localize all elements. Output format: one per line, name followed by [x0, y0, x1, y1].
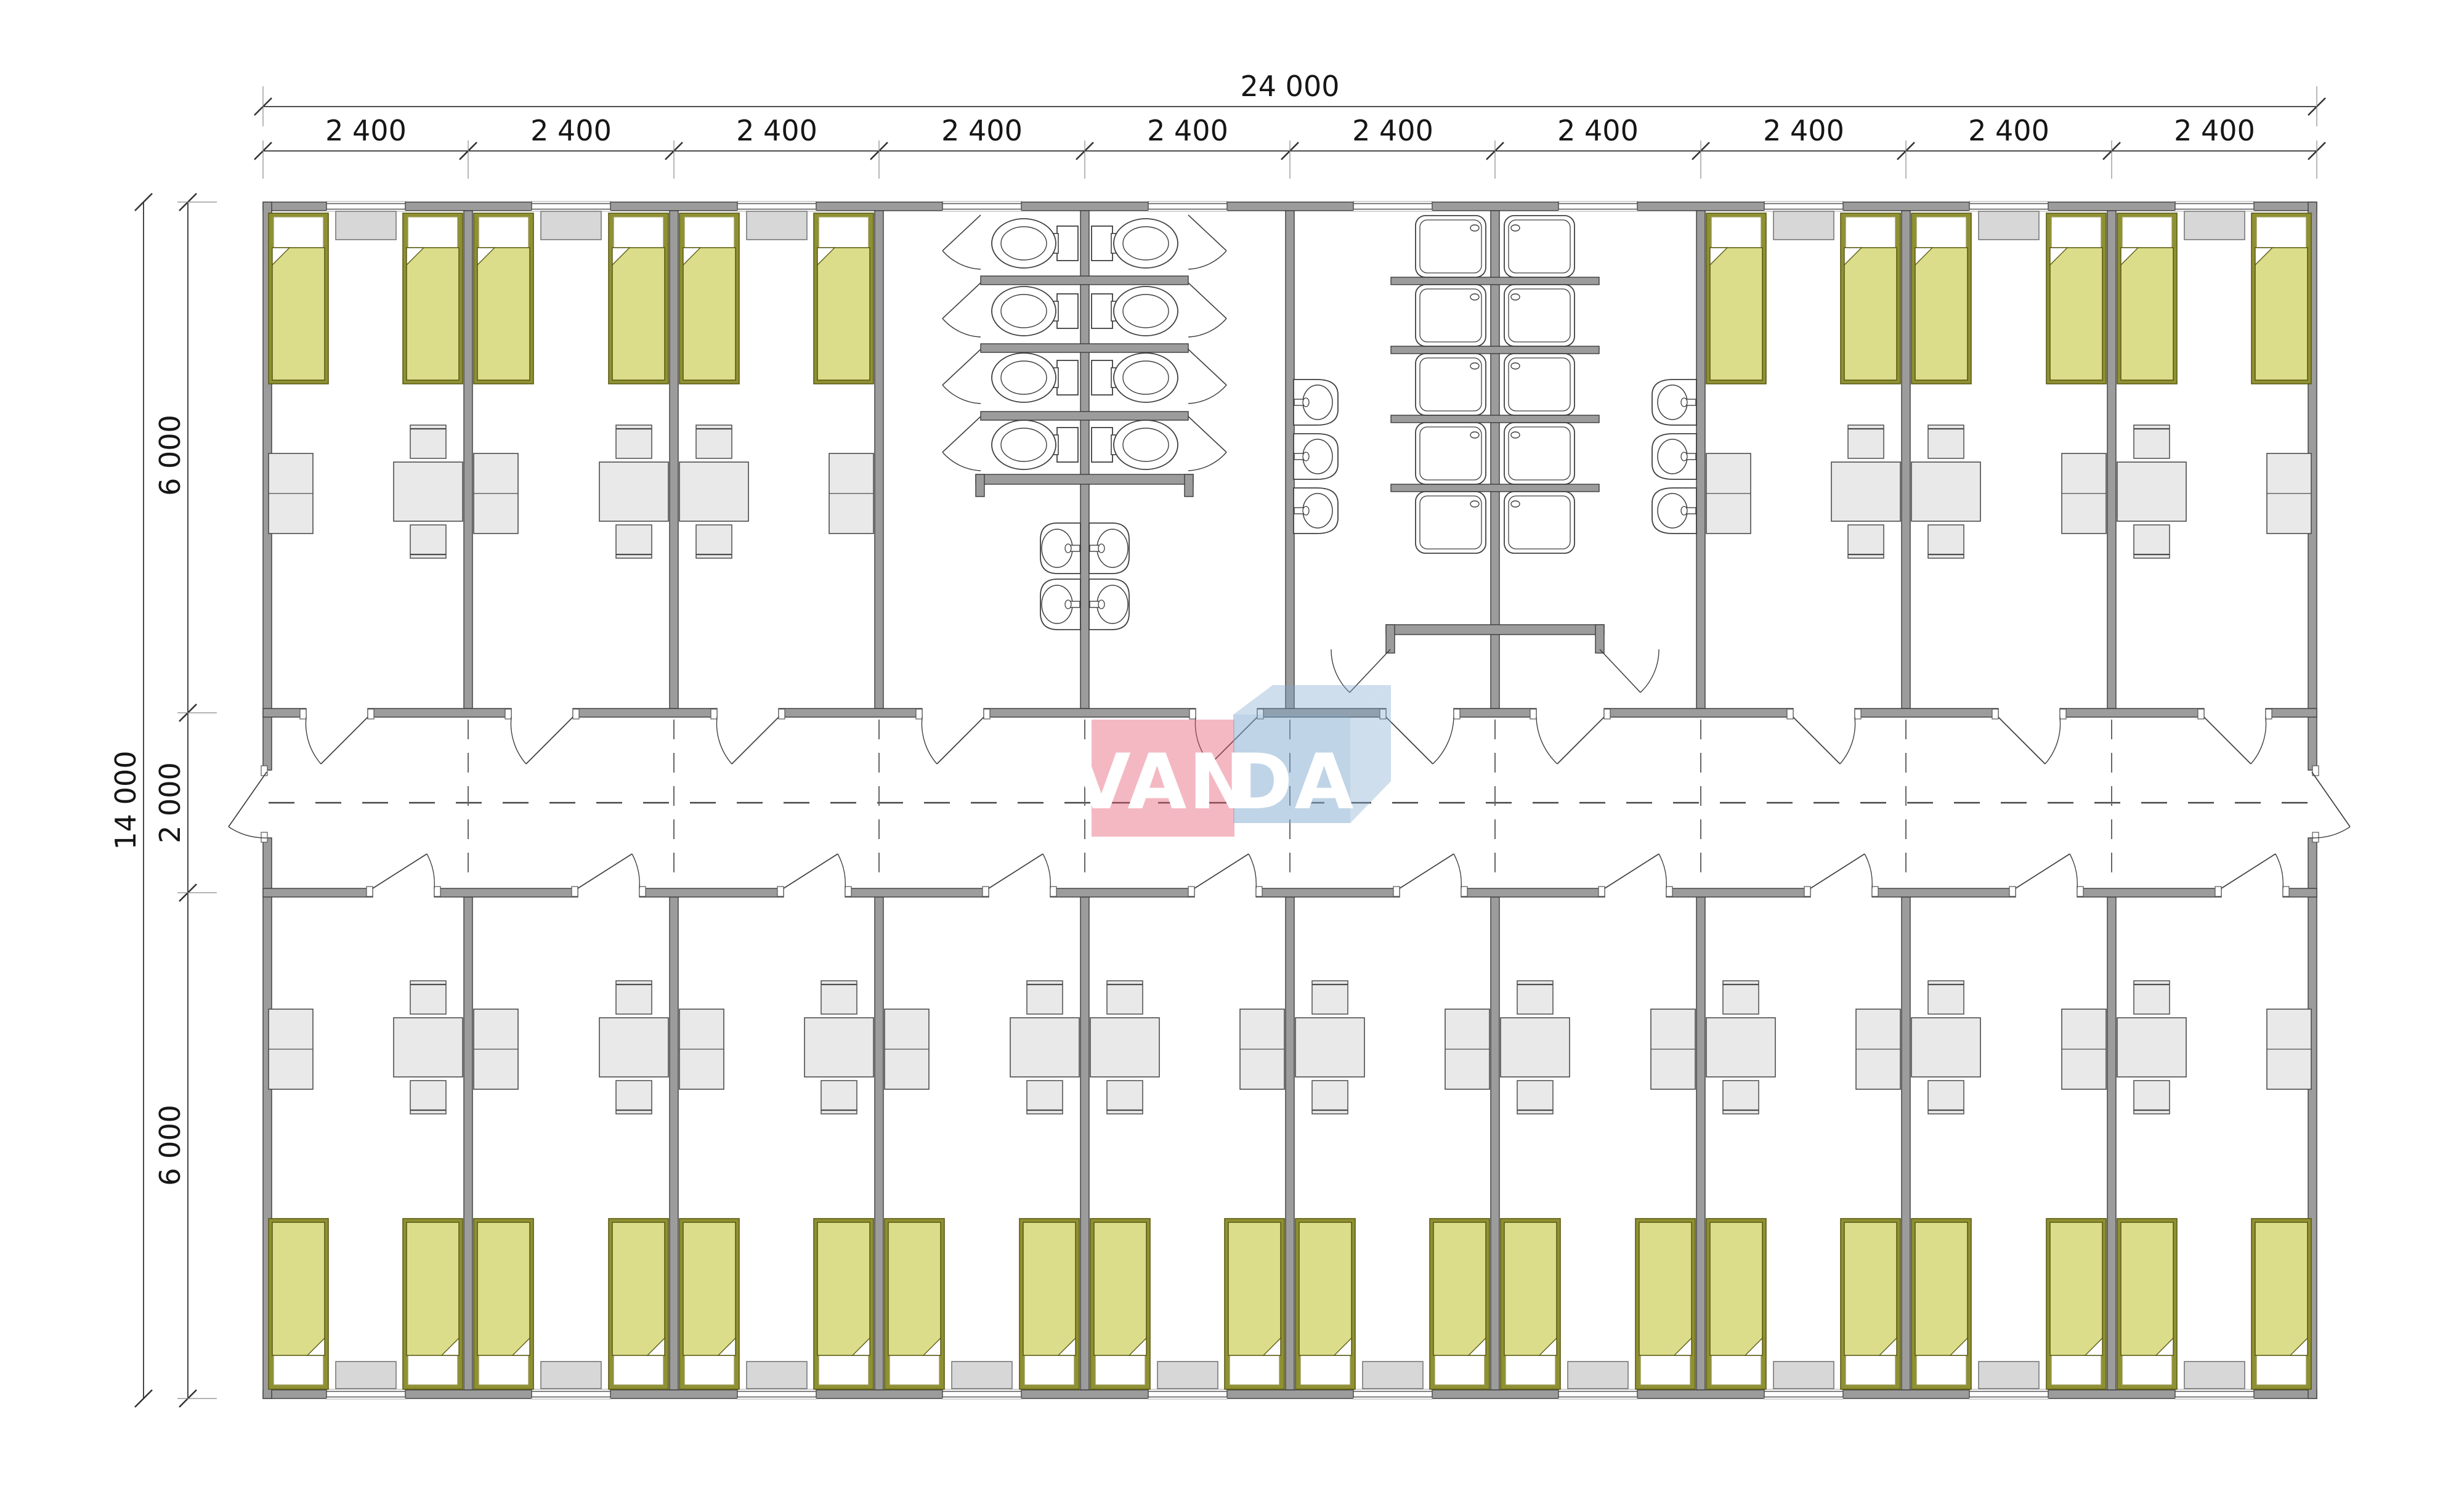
- shower-tray: [1416, 354, 1486, 415]
- radiator: [1979, 1362, 2039, 1389]
- bed: [1295, 1219, 1355, 1389]
- wardrobe: [679, 1009, 724, 1089]
- shower-tray: [1504, 285, 1574, 346]
- stall-door: [1188, 349, 1226, 404]
- wardrobe: [1856, 1009, 1900, 1089]
- dim-total-height: 14 000: [109, 751, 142, 850]
- radiator: [541, 1362, 601, 1389]
- wardrobe: [269, 1009, 313, 1089]
- bed: [814, 1219, 873, 1389]
- toilet: [992, 286, 1078, 336]
- bed: [2251, 213, 2311, 384]
- shower-tray: [1504, 354, 1574, 415]
- stall-door: [1188, 416, 1226, 471]
- bed: [1841, 1219, 1900, 1389]
- table-with-chairs: [1295, 981, 1364, 1114]
- wardrobe: [2267, 1009, 2311, 1089]
- wash-basin: [1294, 488, 1338, 534]
- bed: [2046, 1219, 2106, 1389]
- shower-tray: [1416, 216, 1486, 277]
- bed: [814, 213, 873, 384]
- bed: [1019, 1219, 1079, 1389]
- table-with-chairs: [1706, 981, 1775, 1114]
- logo-text-da: DA: [1230, 738, 1356, 827]
- wash-basin: [1294, 434, 1338, 479]
- bed: [1635, 1219, 1695, 1389]
- wardrobe: [2267, 453, 2311, 534]
- table-with-chairs: [2117, 981, 2186, 1114]
- bed: [2117, 1219, 2177, 1389]
- wardrobe: [1445, 1009, 1489, 1089]
- table-with-chairs: [394, 981, 463, 1114]
- radiator: [1773, 211, 1834, 240]
- wardrobe: [474, 453, 518, 534]
- shower-tray: [1416, 492, 1486, 553]
- shower-door: [1600, 649, 1659, 692]
- dim-total-width: 24 000: [1241, 70, 1340, 103]
- radiator: [2184, 211, 2245, 240]
- radiator: [952, 1362, 1012, 1389]
- shower-tray: [1504, 423, 1574, 484]
- bed: [2046, 213, 2106, 384]
- dim-module-width: 2 400: [1968, 114, 2049, 147]
- wash-basin: [1040, 579, 1080, 630]
- table-with-chairs: [804, 981, 873, 1114]
- wash-basin: [1089, 579, 1129, 630]
- table-with-chairs: [1090, 981, 1159, 1114]
- bed: [474, 1219, 533, 1389]
- bed: [269, 213, 328, 384]
- toilet: [1092, 286, 1178, 336]
- dim-height-segment: 6 000: [153, 415, 187, 496]
- bed: [474, 213, 533, 384]
- toilet: [992, 420, 1078, 469]
- stall-door: [1188, 283, 1226, 337]
- vanda-logo: VANDA: [1072, 685, 1391, 837]
- radiator: [336, 211, 396, 240]
- dim-module-width: 2 400: [2174, 114, 2255, 147]
- radiator: [1363, 1362, 1423, 1389]
- bed: [1706, 1219, 1766, 1389]
- dim-module-width: 2 400: [1352, 114, 1433, 147]
- stall-door: [1188, 215, 1226, 269]
- floor-plan-drawing: VANDA24 0002 4002 4002 4002 4002 4002 40…: [0, 0, 2464, 1502]
- shower-tray: [1416, 285, 1486, 346]
- stall-door: [942, 215, 981, 269]
- toilet: [992, 353, 1078, 402]
- wash-basin: [1652, 434, 1696, 479]
- radiator: [747, 211, 807, 240]
- wardrobe: [474, 1009, 518, 1089]
- wardrobe: [885, 1009, 929, 1089]
- shower-tray: [1504, 492, 1574, 553]
- dim-module-width: 2 400: [1147, 114, 1228, 147]
- table-with-chairs: [1911, 425, 1980, 558]
- wardrobe: [829, 453, 873, 534]
- wash-basin: [1652, 488, 1696, 534]
- bed: [1911, 213, 1971, 384]
- stall-door: [942, 349, 981, 404]
- dim-height-segment: 6 000: [153, 1105, 187, 1186]
- toilet: [1092, 353, 1178, 402]
- table-with-chairs: [1831, 425, 1900, 558]
- wardrobe: [269, 453, 313, 534]
- toilet: [992, 219, 1078, 268]
- wardrobe: [2062, 1009, 2106, 1089]
- wash-basin: [1040, 523, 1080, 574]
- dim-module-width: 2 400: [1763, 114, 1844, 147]
- bed: [1706, 213, 1766, 384]
- table-with-chairs: [599, 981, 668, 1114]
- radiator: [747, 1362, 807, 1389]
- radiator: [1773, 1362, 1834, 1389]
- dim-module-width: 2 400: [325, 114, 407, 147]
- wash-basin: [1089, 523, 1129, 574]
- bed: [403, 1219, 463, 1389]
- toilet: [1092, 219, 1178, 268]
- floor-plan-canvas: VANDA24 0002 4002 4002 4002 4002 4002 40…: [0, 0, 2464, 1502]
- wardrobe: [1240, 1009, 1284, 1089]
- shower-tray: [1416, 423, 1486, 484]
- bed: [609, 213, 668, 384]
- wash-basin: [1294, 380, 1338, 425]
- bed: [2251, 1219, 2311, 1389]
- bed: [1430, 1219, 1489, 1389]
- toilet: [1092, 420, 1178, 469]
- radiator: [1568, 1362, 1628, 1389]
- table-with-chairs: [1911, 981, 1980, 1114]
- bed: [403, 213, 463, 384]
- logo-text-van: VAN: [1072, 738, 1254, 827]
- table-with-chairs: [394, 425, 463, 558]
- wardrobe: [1651, 1009, 1695, 1089]
- table-with-chairs: [1010, 981, 1079, 1114]
- radiator: [2184, 1362, 2245, 1389]
- dim-module-width: 2 400: [530, 114, 612, 147]
- bed: [1911, 1219, 1971, 1389]
- wash-basin: [1652, 380, 1696, 425]
- dim-module-width: 2 400: [1557, 114, 1639, 147]
- radiator: [336, 1362, 396, 1389]
- bed: [609, 1219, 668, 1389]
- table-with-chairs: [2117, 425, 2186, 558]
- bed: [679, 213, 739, 384]
- stall-door: [942, 416, 981, 471]
- wardrobe: [2062, 453, 2106, 534]
- bed: [885, 1219, 944, 1389]
- table-with-chairs: [1501, 981, 1570, 1114]
- dim-module-width: 2 400: [941, 114, 1023, 147]
- radiator: [541, 211, 601, 240]
- bed: [679, 1219, 739, 1389]
- bed: [2117, 213, 2177, 384]
- radiator: [1157, 1362, 1218, 1389]
- bed: [1501, 1219, 1560, 1389]
- dim-module-width: 2 400: [736, 114, 817, 147]
- bed: [1841, 213, 1900, 384]
- wardrobe: [1706, 453, 1751, 534]
- dim-height-segment: 2 000: [153, 762, 187, 843]
- stall-door: [942, 283, 981, 337]
- table-with-chairs: [679, 425, 748, 558]
- bed: [1090, 1219, 1150, 1389]
- shower-tray: [1504, 216, 1574, 277]
- radiator: [1979, 211, 2039, 240]
- table-with-chairs: [599, 425, 668, 558]
- bed: [269, 1219, 328, 1389]
- bed: [1225, 1219, 1284, 1389]
